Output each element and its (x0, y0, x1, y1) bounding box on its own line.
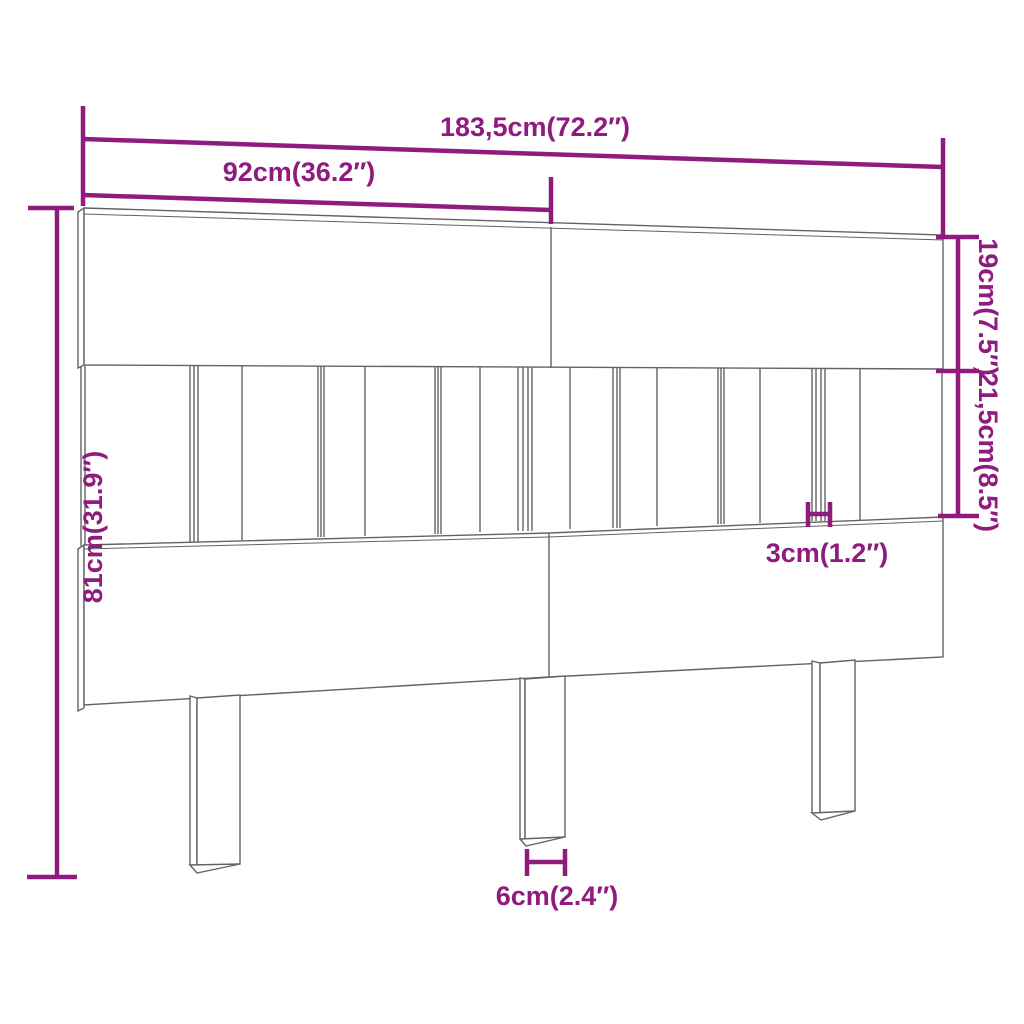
left-leg (190, 695, 240, 873)
dim-panel-width-label: 92cm(36.2″) (223, 157, 376, 187)
slat-section (81, 365, 942, 546)
left-leg-side-face (190, 696, 197, 868)
dim-right-heights: 19cm(7.5″) 21,5cm(8.5″) (936, 237, 1003, 532)
dim-total-height-label: 81cm(31.9″) (78, 451, 108, 604)
dim-total-width-label: 183,5cm(72.2″) (440, 112, 630, 142)
right-leg-bottom-face (812, 811, 855, 820)
dim-slat-section-height-label: 21,5cm(8.5″) (973, 372, 1003, 532)
middle-leg-front-face (525, 676, 565, 841)
top-board (78, 208, 943, 369)
dim-top-board-height-label: 19cm(7.5″) (973, 238, 1003, 376)
dim-total-width-line (83, 139, 943, 167)
top-board-side-face (78, 208, 84, 368)
dim-leg-width: 6cm(2.4″) (496, 849, 619, 911)
right-leg-side-face (812, 661, 820, 816)
headboard-diagram-svg: 183,5cm(72.2″) 92cm(36.2″) 81cm(31.9″) 1… (0, 0, 1024, 1024)
top-board-front-face (84, 208, 943, 369)
dim-panel-width-line (83, 195, 551, 210)
left-leg-bottom-face (190, 864, 240, 873)
middle-leg-bottom-face (520, 837, 565, 846)
dim-leg-width-label: 6cm(2.4″) (496, 881, 619, 911)
left-leg-front-face (197, 695, 240, 868)
dimension-diagram: 183,5cm(72.2″) 92cm(36.2″) 81cm(31.9″) 1… (0, 0, 1024, 1024)
middle-leg-side-face (520, 678, 525, 842)
right-leg (812, 660, 855, 820)
right-leg-front-face (820, 660, 855, 815)
middle-leg (520, 676, 565, 846)
dim-slat-width-label: 3cm(1.2″) (766, 538, 889, 568)
